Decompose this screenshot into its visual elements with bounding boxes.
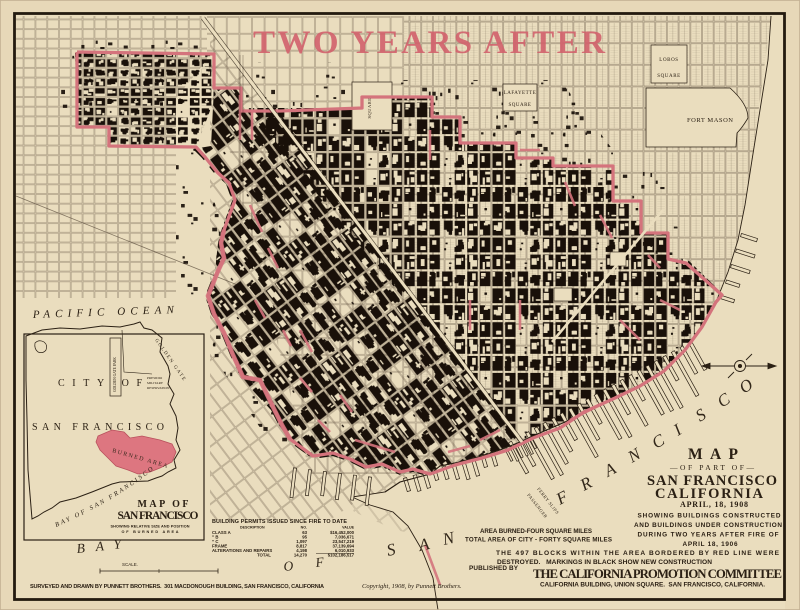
svg-text:TOTAL AREA OF CITY - FORTY SQU: TOTAL AREA OF CITY - FORTY SQUARE MILES — [465, 537, 612, 544]
svg-text:O: O — [283, 558, 295, 574]
svg-text:TOTAL: TOTAL — [257, 553, 271, 558]
svg-text:SQUARE: SQUARE — [367, 97, 372, 118]
svg-text:SQUARE: SQUARE — [657, 74, 681, 79]
svg-text:MILITARY: MILITARY — [147, 381, 164, 385]
svg-text:SURVEYED AND DRAWN BY PUNNETT: SURVEYED AND DRAWN BY PUNNETT BROTHERS. … — [30, 584, 324, 590]
svg-text:SCALE.: SCALE. — [122, 562, 138, 567]
svg-text:DURING TWO YEARS AFTER FIRE OF: DURING TWO YEARS AFTER FIRE OF — [638, 532, 779, 539]
svg-text:SHOWING BUILDINGS CONSTRUCTED: SHOWING BUILDINGS CONSTRUCTED — [638, 513, 781, 520]
svg-text:DESTROYED. MARKINGS IN BLACK: DESTROYED. MARKINGS IN BLACK SHOW NEW CO… — [497, 559, 712, 566]
svg-text:14,270: 14,270 — [294, 553, 308, 558]
svg-text:MAP: MAP — [688, 446, 739, 463]
svg-text:THE CALIFORNIA PROMOTION COMMI: THE CALIFORNIA PROMOTION COMMITTEE — [533, 567, 782, 581]
svg-text:APRIL 18, 1906: APRIL 18, 1906 — [683, 541, 738, 548]
svg-text:BUILDING PERMITS ISSUED SINCE: BUILDING PERMITS ISSUED SINCE FIRE TO DA… — [212, 519, 347, 525]
svg-text:LOBOS: LOBOS — [659, 58, 678, 63]
svg-text:SAN FRANCISCO: SAN FRANCISCO — [118, 510, 199, 522]
svg-text:RESERVATION: RESERVATION — [147, 386, 170, 390]
svg-text:AREA BURNED-FOUR SQUARE MILES: AREA BURNED-FOUR SQUARE MILES — [480, 528, 592, 535]
svg-text:CALIFORNIA BUILDING, UNION SQU: CALIFORNIA BUILDING, UNION SQUARE. SAN F… — [540, 582, 765, 589]
svg-text:APRIL, 18, 1908: APRIL, 18, 1908 — [680, 500, 748, 509]
svg-text:PRESIDIO: PRESIDIO — [147, 376, 163, 380]
svg-text:THE 497 BLOCKS WITHIN THE AREA: THE 497 BLOCKS WITHIN THE AREA BORDERED … — [496, 550, 780, 557]
svg-text:SHOWING RELATIVE SIZE AND POSI: SHOWING RELATIVE SIZE AND POSITION — [111, 525, 190, 529]
svg-text:NO.: NO. — [301, 526, 307, 530]
svg-text:LAFAYETTE: LAFAYETTE — [504, 91, 537, 96]
svg-text:Copyright, 1908, by Punnett Br: Copyright, 1908, by Punnett Brothers. — [362, 583, 462, 590]
svg-text:AND BUILDINGS UNDER CONSTRUCTI: AND BUILDINGS UNDER CONSTRUCTION — [634, 522, 782, 529]
svg-text:DESCRIPTION: DESCRIPTION — [240, 526, 265, 530]
svg-text:B: B — [76, 540, 86, 556]
svg-text:SQUARE: SQUARE — [508, 103, 531, 108]
svg-text:PUBLISHED BY: PUBLISHED BY — [469, 565, 519, 572]
svg-text:FORT MASON: FORT MASON — [687, 117, 733, 124]
svg-text:VALUE: VALUE — [342, 526, 355, 530]
svg-text:TWO YEARS AFTER: TWO YEARS AFTER — [253, 25, 606, 61]
